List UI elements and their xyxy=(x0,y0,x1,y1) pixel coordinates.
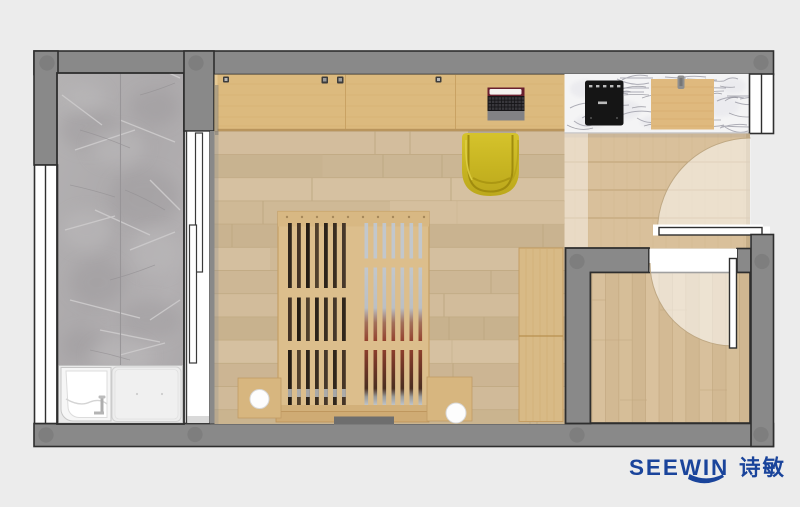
svg-text:诗敏: 诗敏 xyxy=(739,455,786,480)
svg-text:SEEWIN: SEEWIN xyxy=(629,455,729,480)
